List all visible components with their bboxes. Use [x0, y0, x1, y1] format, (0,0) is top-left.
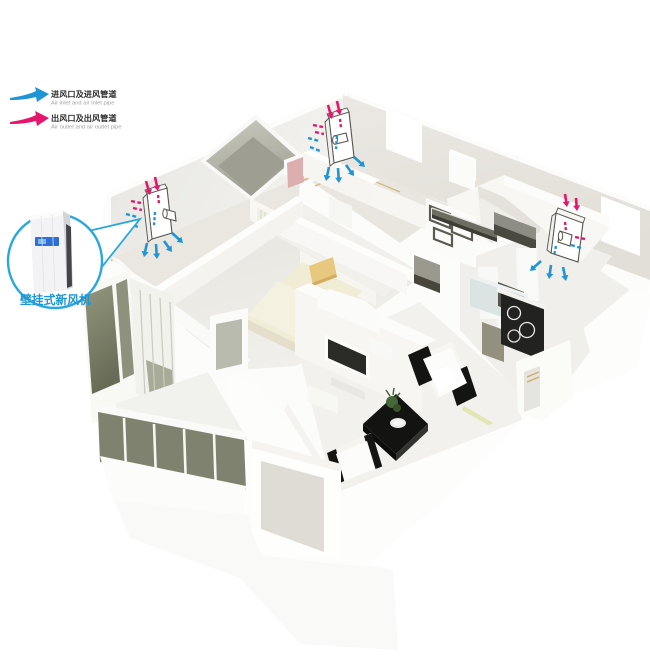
svg-text:壁挂式新风机: 壁挂式新风机: [20, 293, 91, 307]
svg-text:出风口及出风管道: 出风口及出风管道: [51, 113, 117, 123]
svg-text:进风口及进风管道: 进风口及进风管道: [51, 89, 117, 99]
svg-text:Air inlet and air inlet pipe: Air inlet and air inlet pipe: [51, 101, 114, 107]
svg-text:Air outlet and air outlet pipe: Air outlet and air outlet pipe: [51, 125, 122, 131]
